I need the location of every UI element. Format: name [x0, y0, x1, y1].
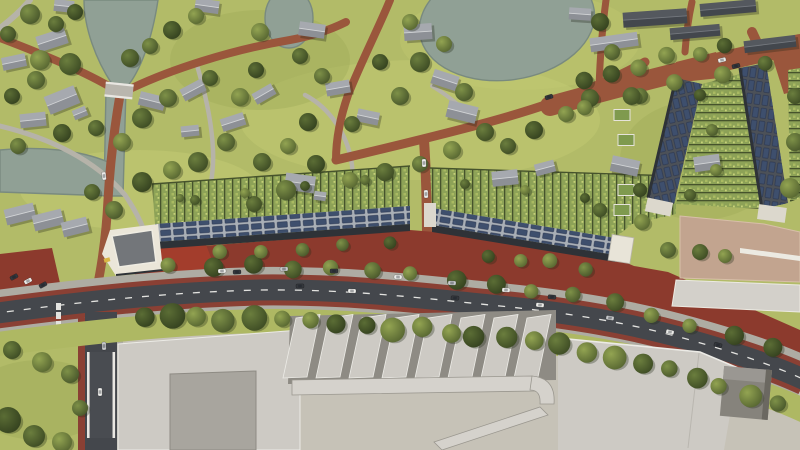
car — [536, 303, 544, 308]
tree — [300, 181, 310, 191]
tree — [307, 155, 325, 173]
tree — [623, 87, 641, 105]
car-windshield — [99, 390, 102, 394]
tree — [694, 89, 706, 101]
tree — [558, 106, 574, 122]
car-windshield — [423, 161, 426, 165]
tree — [142, 38, 158, 54]
tree — [391, 87, 409, 105]
green-roof-box — [614, 110, 630, 121]
tree — [186, 307, 206, 327]
tree — [27, 71, 45, 89]
tree — [190, 195, 200, 205]
tree — [240, 188, 250, 198]
tree — [578, 262, 592, 276]
tree — [577, 100, 592, 115]
tree — [442, 324, 461, 343]
canal-bridge — [104, 82, 133, 100]
tree — [687, 368, 708, 389]
tree — [160, 303, 186, 329]
tree — [520, 185, 530, 195]
tree — [630, 60, 647, 77]
tree — [542, 253, 557, 268]
tree — [514, 254, 527, 267]
tree — [577, 342, 598, 363]
tree — [565, 287, 581, 303]
tree — [684, 189, 696, 201]
tree — [10, 138, 26, 154]
car — [330, 269, 338, 273]
tree — [163, 161, 181, 179]
tree — [202, 70, 218, 86]
tree — [135, 307, 155, 327]
car — [394, 275, 402, 279]
tree — [364, 262, 381, 279]
tree — [711, 378, 727, 394]
car — [101, 172, 106, 180]
tree — [299, 113, 317, 131]
car — [422, 159, 426, 167]
tree — [32, 352, 52, 372]
tree — [525, 331, 544, 350]
car-windshield — [282, 268, 286, 271]
tree — [725, 326, 744, 345]
car — [424, 190, 428, 198]
tree — [603, 65, 620, 82]
green-roof-box — [618, 135, 634, 146]
car — [348, 289, 356, 293]
tree — [161, 258, 176, 273]
tree — [53, 124, 71, 142]
tree — [403, 266, 417, 280]
tree — [296, 243, 310, 257]
tree — [84, 184, 100, 200]
tree — [372, 54, 388, 70]
car — [218, 269, 226, 273]
tree — [525, 121, 543, 139]
green-roof-box — [618, 185, 634, 196]
row2-end-cap-east — [608, 234, 634, 263]
north-right-buildings — [672, 216, 800, 312]
car-windshield — [332, 270, 336, 273]
tree — [780, 178, 800, 198]
car — [502, 288, 510, 293]
tree — [4, 88, 20, 104]
car-windshield — [103, 174, 106, 178]
tree — [274, 311, 290, 327]
warehouse-west-annex — [170, 371, 256, 450]
car — [448, 281, 456, 285]
tree — [455, 83, 473, 101]
tree — [30, 50, 50, 70]
tree — [280, 138, 296, 154]
car-windshield — [220, 270, 224, 273]
tree — [253, 153, 271, 171]
tree — [634, 214, 650, 230]
tree — [212, 244, 227, 259]
tree — [159, 89, 177, 107]
tree — [3, 341, 21, 359]
house — [19, 111, 49, 130]
car — [451, 296, 459, 301]
tree — [463, 326, 485, 348]
tree — [658, 47, 675, 64]
car-windshield — [550, 296, 554, 299]
tree — [132, 108, 152, 128]
car — [296, 284, 304, 288]
green-roof-box — [614, 205, 630, 216]
tree — [23, 425, 45, 447]
car — [98, 388, 102, 396]
tree — [718, 249, 732, 263]
car-windshield — [350, 290, 354, 293]
tree — [0, 26, 16, 42]
tree — [644, 308, 659, 323]
tree — [606, 293, 624, 311]
tree — [61, 365, 79, 383]
aerial-render — [0, 0, 800, 450]
tree — [412, 317, 432, 337]
tree — [48, 16, 64, 32]
tree — [436, 36, 452, 52]
house — [568, 7, 593, 23]
tree — [447, 270, 467, 290]
ramp-wall-west — [87, 352, 90, 438]
tree — [59, 53, 81, 75]
tree — [121, 49, 139, 67]
tree — [248, 62, 264, 78]
tree — [758, 56, 773, 71]
tree — [132, 172, 152, 192]
car-windshield — [504, 289, 508, 292]
tree — [593, 203, 607, 217]
tree — [176, 194, 184, 202]
tree — [604, 44, 620, 60]
tree — [217, 133, 235, 151]
tree — [682, 319, 696, 333]
tree — [380, 318, 405, 343]
tree — [661, 360, 678, 377]
car-windshield — [298, 285, 302, 288]
car-windshield — [425, 192, 428, 196]
tree — [548, 332, 570, 354]
tree — [254, 245, 268, 259]
tree — [188, 152, 208, 172]
car — [102, 342, 106, 350]
row2-end-cap-west — [424, 203, 436, 227]
tree — [327, 314, 346, 333]
tree — [460, 179, 470, 189]
tree — [251, 23, 269, 41]
tree — [763, 338, 782, 357]
tree — [302, 312, 319, 329]
tree — [591, 13, 609, 31]
tree — [358, 317, 375, 334]
tree — [706, 124, 718, 136]
car-windshield — [235, 271, 239, 274]
tree — [666, 74, 682, 90]
house — [491, 169, 521, 189]
tree — [660, 242, 676, 258]
tree — [336, 238, 349, 251]
tree — [113, 133, 131, 151]
white-building-roof-slab — [112, 230, 156, 267]
tree — [496, 327, 517, 348]
tree — [292, 48, 308, 64]
tree — [443, 141, 461, 159]
tree — [67, 4, 83, 20]
tree — [633, 183, 647, 197]
tree — [714, 66, 731, 83]
gray-flat-roof-building — [672, 280, 800, 312]
tree — [633, 354, 653, 374]
tree — [72, 400, 88, 416]
tree — [603, 346, 627, 370]
tree — [402, 14, 418, 30]
tree — [580, 193, 590, 203]
tree — [710, 164, 722, 176]
tree — [360, 175, 370, 185]
car-windshield — [103, 344, 106, 348]
tree — [410, 52, 430, 72]
car-windshield — [396, 276, 400, 279]
tree — [88, 120, 104, 136]
tree — [105, 201, 123, 219]
tree — [692, 244, 708, 260]
tree — [693, 47, 707, 61]
tree — [211, 309, 234, 332]
car — [280, 267, 288, 271]
aerial-masterplan-screenshot — [0, 0, 800, 450]
tree — [500, 138, 516, 154]
car — [548, 295, 556, 300]
tree — [770, 395, 786, 411]
tree — [524, 284, 538, 298]
tree — [344, 116, 360, 132]
ramp-wall-east — [113, 352, 116, 438]
tree — [376, 163, 394, 181]
tree — [231, 88, 249, 106]
tree — [342, 172, 358, 188]
tree — [575, 72, 592, 89]
tree — [739, 385, 762, 408]
tree — [242, 305, 268, 331]
tree — [163, 21, 181, 39]
tree — [384, 236, 397, 249]
car-windshield — [450, 282, 454, 285]
car-windshield — [538, 304, 542, 307]
car-windshield — [608, 316, 612, 319]
car-windshield — [453, 297, 457, 300]
tree — [476, 123, 494, 141]
tree — [717, 38, 732, 53]
tree — [276, 180, 296, 200]
tree — [482, 250, 495, 263]
tree — [314, 68, 330, 84]
tree — [20, 4, 40, 24]
car — [233, 270, 241, 274]
tree — [188, 8, 204, 24]
tree — [204, 258, 223, 277]
